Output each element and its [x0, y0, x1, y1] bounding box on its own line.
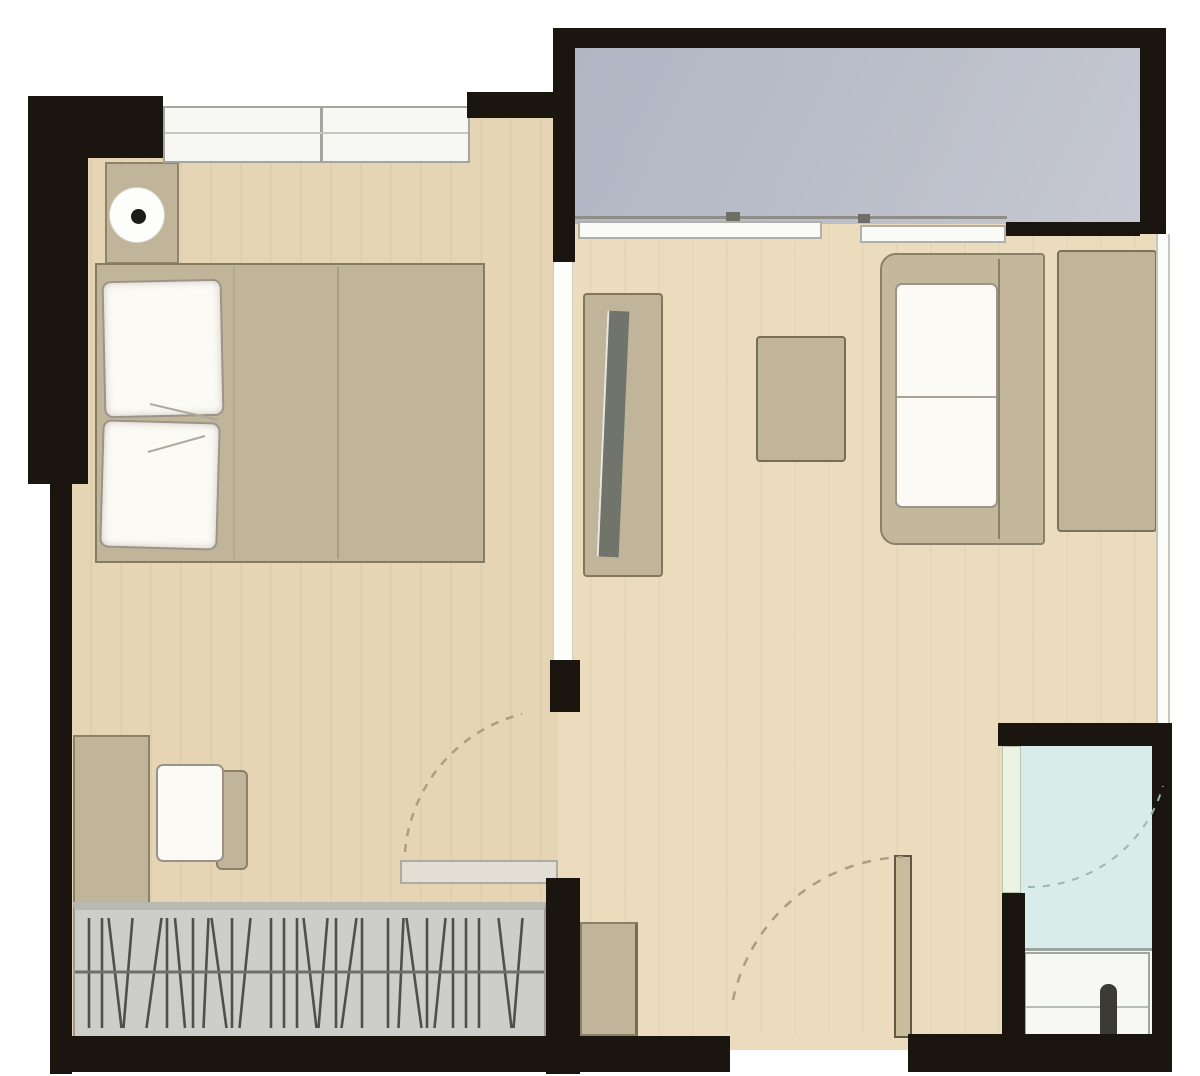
- pillow: [99, 419, 221, 550]
- sofa-cushions: [895, 283, 998, 508]
- coffee-table: [756, 336, 846, 462]
- pillow: [102, 279, 225, 418]
- entry-door-leaf: [894, 855, 912, 1038]
- bedroom-door-leaf: [400, 860, 558, 884]
- sliding-window-panel-right: [860, 225, 1006, 243]
- right-side-window: [1156, 234, 1170, 726]
- sliding-window-stop-tick: [726, 212, 740, 221]
- bed-mattress-line: [233, 267, 235, 559]
- window-rail-line: [165, 132, 468, 134]
- bathroom-door-leaf: [1002, 746, 1021, 893]
- shoe-cabinet: [580, 922, 638, 1036]
- vanity-sink: [1024, 952, 1150, 1036]
- wall-block-lower: [546, 878, 580, 1074]
- faucet-icon: [1100, 984, 1117, 1036]
- wall-bathroom-right: [1152, 723, 1172, 1072]
- wall-divider-upper: [553, 28, 575, 262]
- desk-chair-seat: [156, 764, 224, 862]
- floor-plan-canvas: [0, 0, 1200, 1076]
- sliding-window-stop-tick: [858, 214, 870, 223]
- wall-bottom-right: [908, 1034, 1172, 1072]
- lamp-center-dot: [131, 209, 146, 224]
- side-table: [1057, 250, 1157, 532]
- wall-bathroom-top: [998, 723, 1166, 746]
- sliding-window-track: [575, 216, 1007, 219]
- wardrobe-hanging-rail: [73, 902, 546, 1040]
- balcony-floor: [566, 40, 1142, 224]
- vanity-counter-line: [1026, 1006, 1148, 1008]
- sofa: [880, 253, 1045, 545]
- wall-left-upper: [28, 96, 88, 484]
- wall-balcony-top: [553, 28, 1166, 48]
- cushion-divider-line: [897, 396, 996, 398]
- wall-bottom-left: [55, 1036, 730, 1072]
- wardrobe-hatch-pattern: [75, 910, 544, 1038]
- tv-icon: [597, 311, 630, 558]
- tv-cabinet: [583, 293, 663, 577]
- desk: [73, 735, 150, 905]
- wall-left-lower: [50, 484, 72, 1074]
- window-mullion: [320, 108, 323, 161]
- blanket-fold-line: [337, 267, 339, 559]
- bedroom-living-divider-wall: [553, 258, 573, 662]
- wall-balcony-right: [1140, 28, 1166, 234]
- wall-balcony-bottom: [1006, 222, 1140, 236]
- sliding-window-panel-left: [578, 221, 822, 239]
- wall-block-mid: [550, 660, 580, 712]
- sofa-backrest-line: [998, 259, 1000, 539]
- bedroom-window: [163, 106, 470, 163]
- entry-threshold: [727, 1034, 908, 1050]
- wall-bathroom-left: [1002, 893, 1025, 1040]
- bathroom-floor: [1014, 742, 1158, 954]
